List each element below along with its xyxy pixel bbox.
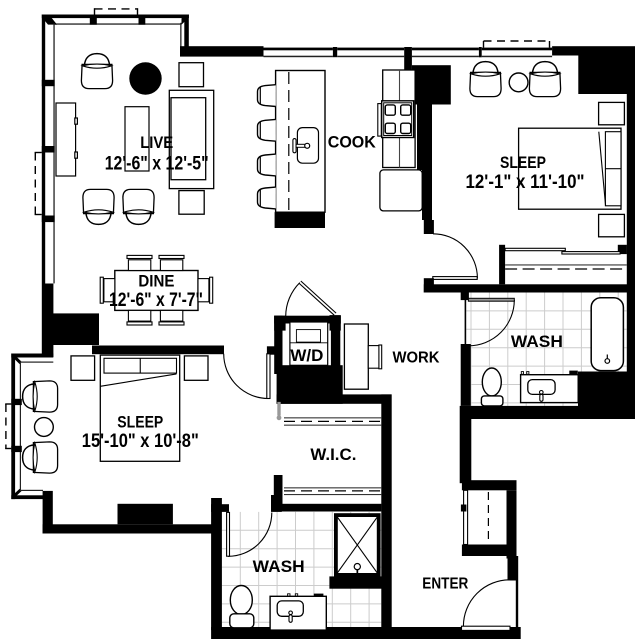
svg-text:WASH: WASH bbox=[253, 557, 305, 576]
svg-text:12'-6" x 12'-5": 12'-6" x 12'-5" bbox=[105, 154, 209, 175]
svg-text:WORK: WORK bbox=[393, 350, 440, 367]
svg-text:WASH: WASH bbox=[511, 332, 563, 351]
svg-text:SLEEP: SLEEP bbox=[500, 153, 546, 172]
svg-text:SLEEP: SLEEP bbox=[117, 413, 163, 432]
svg-text:12'-6" x 7'-7": 12'-6" x 7'-7" bbox=[109, 290, 203, 311]
svg-text:DINE: DINE bbox=[138, 272, 174, 291]
svg-text:COOK: COOK bbox=[328, 133, 377, 152]
svg-text:LIVE: LIVE bbox=[140, 133, 173, 152]
svg-text:15'-10" x 10'-8": 15'-10" x 10'-8" bbox=[82, 431, 199, 452]
svg-text:ENTER: ENTER bbox=[422, 576, 468, 593]
svg-text:W.I.C.: W.I.C. bbox=[310, 446, 356, 464]
svg-text:W/D: W/D bbox=[290, 346, 323, 365]
svg-text:12'-1" x 11'-10": 12'-1" x 11'-10" bbox=[466, 172, 585, 193]
